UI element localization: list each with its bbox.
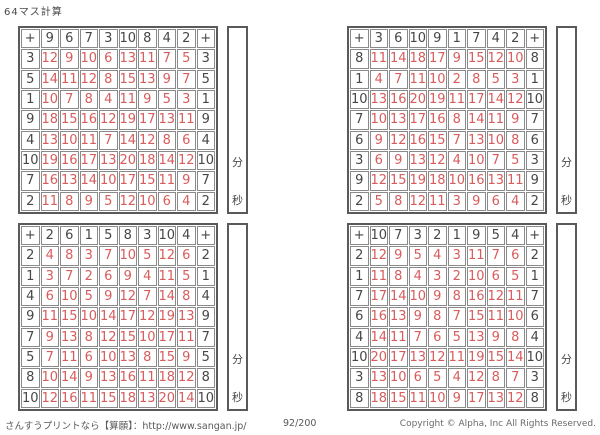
answer-cell: 13 [41, 131, 60, 150]
answer-cell: 10 [409, 287, 428, 306]
answer-cell: 4 [41, 246, 60, 265]
operator-cell: + [350, 226, 369, 245]
answer-cell: 14 [158, 287, 177, 306]
answer-cell: 6 [487, 267, 506, 286]
answer-cell: 9 [158, 70, 177, 89]
answer-cell: 6 [99, 267, 118, 286]
answer-cell: 9 [448, 49, 467, 68]
answer-cell: 3 [506, 70, 525, 89]
page-number: 92/200 [283, 418, 316, 429]
answer-cell: 12 [41, 49, 60, 68]
answer-cell: 8 [80, 90, 99, 109]
answer-cell: 12 [370, 246, 389, 265]
row-header-cell: 4 [350, 328, 369, 347]
row-header-cell: 4 [197, 131, 216, 150]
answer-cell: 11 [158, 171, 177, 190]
answer-cell: 13 [370, 90, 389, 109]
answer-cell: 11 [409, 70, 428, 89]
answer-cell: 11 [60, 70, 79, 89]
answer-cell: 9 [467, 192, 486, 211]
answer-cell: 10 [41, 90, 60, 109]
answer-cell: 17 [119, 171, 138, 190]
answer-cell: 15 [60, 110, 79, 129]
answer-cell: 17 [389, 348, 408, 367]
answer-cell: 13 [60, 171, 79, 190]
answer-cell: 15 [389, 389, 408, 408]
answer-cell: 12 [409, 192, 428, 211]
answer-cell: 6 [41, 287, 60, 306]
answer-cell: 13 [119, 348, 138, 367]
answer-cell: 20 [370, 348, 389, 367]
answer-cell: 9 [506, 110, 525, 129]
answer-cell: 7 [177, 70, 196, 89]
row-header-cell: 7 [526, 110, 545, 129]
answer-cell: 14 [389, 287, 408, 306]
answer-cell: 8 [448, 110, 467, 129]
col-header-cell: 4 [487, 29, 506, 48]
row-header-cell: 5 [197, 70, 216, 89]
answer-cell: 4 [177, 192, 196, 211]
answer-cell: 12 [41, 389, 60, 408]
row-header-cell: 2 [197, 192, 216, 211]
answer-cell: 10 [60, 131, 79, 150]
worksheet-block-top-left: +967310842+31291061311753514111281513975… [18, 26, 248, 214]
col-header-cell: 7 [389, 226, 408, 245]
answer-cell: 13 [177, 307, 196, 326]
answer-cell: 9 [138, 90, 157, 109]
answer-cell: 7 [41, 348, 60, 367]
col-header-cell: 9 [467, 226, 486, 245]
col-header-cell: 5 [99, 226, 118, 245]
answer-cell: 8 [448, 287, 467, 306]
answer-cell: 5 [138, 246, 157, 265]
row-header-cell: 3 [197, 49, 216, 68]
answer-cell: 16 [60, 151, 79, 170]
worksheet-block-bottom-left: +261583104+24837105126213726941151461059… [18, 223, 248, 411]
answer-cell: 9 [389, 246, 408, 265]
answer-cell: 6 [487, 192, 506, 211]
row-header-cell: 8 [21, 368, 40, 387]
row-header-cell: 7 [350, 110, 369, 129]
answer-cell: 11 [389, 328, 408, 347]
time-box-bottom-right: 分 秒 [556, 223, 577, 411]
answer-cell: 19 [119, 110, 138, 129]
row-header-cell: 1 [21, 267, 40, 286]
answer-cell: 6 [80, 348, 99, 367]
answer-cell: 7 [448, 131, 467, 150]
row-header-cell: 10 [350, 90, 369, 109]
answer-cell: 11 [41, 192, 60, 211]
row-header-cell: 10 [197, 151, 216, 170]
answer-cell: 13 [389, 307, 408, 326]
answer-cell: 11 [177, 110, 196, 129]
answer-cell: 11 [428, 192, 447, 211]
answer-cell: 19 [467, 348, 486, 367]
answer-cell: 8 [428, 307, 447, 326]
row-header-cell: 6 [350, 307, 369, 326]
answer-cell: 9 [80, 368, 99, 387]
row-header-cell: 7 [526, 287, 545, 306]
row-header-cell: 3 [526, 368, 545, 387]
answer-cell: 14 [158, 151, 177, 170]
answer-cell: 9 [177, 348, 196, 367]
row-header-cell: 8 [526, 49, 545, 68]
col-header-cell: 3 [138, 226, 157, 245]
answer-cell: 10 [448, 171, 467, 190]
answer-cell: 19 [41, 151, 60, 170]
row-header-cell: 1 [350, 70, 369, 89]
page-title: 64マス計算 [4, 3, 63, 18]
seconds-label: 秒 [558, 389, 575, 405]
answer-cell: 11 [467, 246, 486, 265]
row-header-cell: 8 [526, 389, 545, 408]
col-header-cell: 8 [138, 29, 157, 48]
answer-cell: 7 [60, 90, 79, 109]
answer-cell: 5 [448, 328, 467, 347]
col-header-cell: 3 [370, 29, 389, 48]
answer-cell: 12 [487, 287, 506, 306]
row-header-cell: 9 [197, 110, 216, 129]
answer-cell: 7 [99, 131, 118, 150]
row-header-cell: 2 [526, 192, 545, 211]
answer-cell: 5 [177, 267, 196, 286]
answer-cell: 15 [138, 171, 157, 190]
answer-cell: 3 [177, 90, 196, 109]
answer-cell: 11 [370, 49, 389, 68]
answer-cell: 4 [409, 267, 428, 286]
answer-cell: 16 [119, 368, 138, 387]
row-header-cell: 10 [526, 90, 545, 109]
time-box-top-left: 分 秒 [227, 26, 248, 214]
answer-cell: 14 [506, 348, 525, 367]
answer-cell: 4 [448, 368, 467, 387]
answer-cell: 17 [467, 90, 486, 109]
row-header-cell: 3 [350, 368, 369, 387]
row-header-cell: 6 [526, 131, 545, 150]
answer-cell: 12 [428, 151, 447, 170]
col-header-cell: 7 [467, 29, 486, 48]
answer-grid-top-right: +361091742+81114181791512108147111028531… [347, 26, 547, 214]
answer-cell: 13 [487, 389, 506, 408]
answer-cell: 6 [506, 246, 525, 265]
col-header-cell: 6 [60, 29, 79, 48]
answer-cell: 10 [119, 246, 138, 265]
answer-cell: 18 [428, 171, 447, 190]
col-header-cell: 1 [448, 226, 467, 245]
answer-cell: 18 [158, 368, 177, 387]
answer-cell: 9 [80, 192, 99, 211]
answer-cell: 12 [158, 246, 177, 265]
col-header-cell: 10 [370, 226, 389, 245]
answer-cell: 12 [428, 348, 447, 367]
answer-cell: 17 [467, 389, 486, 408]
answer-cell: 14 [80, 171, 99, 190]
answer-cell: 9 [428, 287, 447, 306]
answer-cell: 17 [138, 110, 157, 129]
col-header-cell: 3 [99, 29, 118, 48]
col-header-cell: 4 [506, 226, 525, 245]
answer-cell: 18 [119, 389, 138, 408]
row-header-cell: 1 [526, 267, 545, 286]
row-header-cell: 2 [350, 192, 369, 211]
answer-cell: 9 [448, 389, 467, 408]
answer-cell: 9 [119, 267, 138, 286]
row-header-cell: 7 [197, 328, 216, 347]
col-header-cell: 6 [389, 29, 408, 48]
answer-cell: 12 [119, 287, 138, 306]
row-header-cell: 1 [197, 90, 216, 109]
answer-cell: 10 [80, 49, 99, 68]
row-header-cell: 3 [21, 49, 40, 68]
answer-cell: 11 [506, 171, 525, 190]
answer-cell: 12 [370, 171, 389, 190]
answer-cell: 17 [409, 110, 428, 129]
answer-cell: 8 [99, 70, 118, 89]
answer-cell: 10 [389, 368, 408, 387]
answer-cell: 12 [119, 192, 138, 211]
seconds-label: 秒 [229, 192, 246, 208]
answer-cell: 15 [487, 348, 506, 367]
answer-cell: 9 [409, 307, 428, 326]
operator-cell: + [21, 226, 40, 245]
answer-cell: 12 [177, 151, 196, 170]
answer-cell: 8 [177, 287, 196, 306]
col-header-cell: 7 [80, 29, 99, 48]
answer-cell: 9 [389, 151, 408, 170]
row-header-cell: 7 [21, 171, 40, 190]
answer-cell: 7 [138, 287, 157, 306]
answer-cell: 7 [409, 328, 428, 347]
answer-cell: 17 [119, 307, 138, 326]
answer-cell: 4 [448, 151, 467, 170]
answer-cell: 7 [506, 368, 525, 387]
answer-cell: 10 [370, 110, 389, 129]
answer-cell: 8 [138, 348, 157, 367]
answer-cell: 12 [99, 328, 118, 347]
answer-cell: 14 [487, 90, 506, 109]
row-header-cell: 10 [350, 348, 369, 367]
answer-cell: 15 [99, 389, 118, 408]
answer-cell: 8 [389, 267, 408, 286]
answer-cell: 15 [60, 307, 79, 326]
answer-cell: 18 [41, 110, 60, 129]
row-header-cell: 2 [197, 246, 216, 265]
answer-cell: 13 [99, 368, 118, 387]
col-header-cell: 6 [60, 226, 79, 245]
answer-cell: 18 [409, 49, 428, 68]
seconds-label: 秒 [229, 389, 246, 405]
worksheet-block-bottom-right: +107321954+21295431176211184321065171714… [347, 223, 577, 411]
answer-cell: 6 [99, 49, 118, 68]
answer-cell: 17 [80, 151, 99, 170]
answer-cell: 10 [506, 49, 525, 68]
time-box-bottom-left: 分 秒 [227, 223, 248, 411]
row-header-cell: 1 [526, 70, 545, 89]
answer-cell: 8 [80, 328, 99, 347]
answer-cell: 12 [467, 368, 486, 387]
answer-cell: 4 [370, 70, 389, 89]
minutes-label: 分 [229, 351, 246, 367]
answer-cell: 11 [60, 348, 79, 367]
answer-cell: 10 [428, 389, 447, 408]
answer-cell: 3 [80, 246, 99, 265]
row-header-cell: 7 [21, 328, 40, 347]
answer-cell: 13 [99, 151, 118, 170]
answer-cell: 14 [389, 49, 408, 68]
copyright-text: Copyright © Alpha, Inc All Rights Reserv… [400, 419, 596, 429]
row-header-cell: 1 [350, 267, 369, 286]
operator-cell: + [526, 226, 545, 245]
answer-cell: 13 [138, 70, 157, 89]
answer-cell: 8 [506, 328, 525, 347]
row-header-cell: 4 [197, 287, 216, 306]
answer-cell: 7 [60, 267, 79, 286]
answer-cell: 11 [506, 287, 525, 306]
answer-cell: 8 [467, 70, 486, 89]
answer-cell: 7 [158, 49, 177, 68]
answer-cell: 5 [506, 151, 525, 170]
row-header-cell: 4 [526, 328, 545, 347]
row-header-cell: 2 [526, 246, 545, 265]
answer-cell: 15 [389, 171, 408, 190]
answer-cell: 9 [99, 287, 118, 306]
col-header-cell: 9 [428, 29, 447, 48]
answer-cell: 13 [389, 110, 408, 129]
col-header-cell: 3 [409, 226, 428, 245]
answer-cell: 15 [428, 131, 447, 150]
row-header-cell: 9 [197, 307, 216, 326]
answer-cell: 14 [99, 307, 118, 326]
answer-cell: 10 [138, 328, 157, 347]
answer-cell: 15 [119, 70, 138, 89]
answer-cell: 16 [80, 110, 99, 129]
answer-cell: 3 [448, 246, 467, 265]
row-header-cell: 6 [526, 307, 545, 326]
answer-cell: 13 [467, 131, 486, 150]
col-header-cell: 5 [487, 226, 506, 245]
answer-cell: 2 [448, 267, 467, 286]
answer-cell: 10 [487, 131, 506, 150]
answer-grid-bottom-right: +107321954+21295431176211184321065171714… [347, 223, 547, 411]
answer-cell: 6 [409, 368, 428, 387]
answer-cell: 8 [60, 246, 79, 265]
answer-cell: 5 [80, 287, 99, 306]
minutes-label: 分 [558, 351, 575, 367]
answer-cell: 10 [41, 368, 60, 387]
col-header-cell: 1 [448, 29, 467, 48]
answer-cell: 3 [41, 267, 60, 286]
col-header-cell: 4 [177, 226, 196, 245]
footer-source-text: さんすうプリントなら【算願】：http://www.sangan.jp/ [5, 418, 247, 432]
answer-cell: 12 [80, 70, 99, 89]
answer-cell: 13 [119, 49, 138, 68]
answer-cell: 17 [370, 287, 389, 306]
answer-cell: 10 [99, 171, 118, 190]
operator-cell: + [526, 29, 545, 48]
answer-cell: 9 [370, 131, 389, 150]
answer-cell: 4 [506, 192, 525, 211]
row-header-cell: 4 [21, 287, 40, 306]
answer-cell: 14 [467, 110, 486, 129]
operator-cell: + [21, 29, 40, 48]
row-header-cell: 9 [526, 171, 545, 190]
answer-cell: 4 [428, 246, 447, 265]
worksheet-block-top-right: +361091742+81114181791512108147111028531… [347, 26, 577, 214]
answer-cell: 9 [41, 328, 60, 347]
answer-cell: 13 [409, 348, 428, 367]
col-header-cell: 2 [41, 226, 60, 245]
row-header-cell: 5 [197, 348, 216, 367]
answer-cell: 12 [177, 368, 196, 387]
answer-cell: 10 [428, 70, 447, 89]
answer-cell: 20 [119, 151, 138, 170]
answer-cell: 11 [138, 49, 157, 68]
row-header-cell: 8 [350, 49, 369, 68]
col-header-cell: 10 [409, 29, 428, 48]
answer-cell: 16 [467, 171, 486, 190]
row-header-cell: 7 [350, 287, 369, 306]
answer-cell: 5 [99, 192, 118, 211]
col-header-cell: 2 [506, 29, 525, 48]
col-header-cell: 1 [80, 226, 99, 245]
answer-cell: 13 [60, 328, 79, 347]
col-header-cell: 2 [428, 226, 447, 245]
answer-grid-top-left: +967310842+31291061311753514111281513975… [18, 26, 218, 214]
answer-cell: 7 [487, 246, 506, 265]
answer-cell: 2 [80, 267, 99, 286]
minutes-label: 分 [229, 154, 246, 170]
col-header-cell: 2 [177, 29, 196, 48]
answer-cell: 11 [119, 90, 138, 109]
answer-cell: 6 [177, 246, 196, 265]
row-header-cell: 1 [197, 267, 216, 286]
answer-cell: 7 [99, 246, 118, 265]
row-header-cell: 10 [197, 389, 216, 408]
answer-cell: 16 [60, 389, 79, 408]
row-header-cell: 2 [350, 246, 369, 265]
col-header-cell: 8 [119, 226, 138, 245]
row-header-cell: 4 [21, 131, 40, 150]
row-header-cell: 10 [21, 151, 40, 170]
answer-cell: 12 [138, 131, 157, 150]
answer-cell: 11 [41, 307, 60, 326]
answer-cell: 9 [177, 171, 196, 190]
answer-cell: 11 [177, 328, 196, 347]
answer-cell: 11 [487, 110, 506, 129]
answer-cell: 13 [370, 368, 389, 387]
col-header-cell: 10 [158, 226, 177, 245]
answer-cell: 5 [177, 49, 196, 68]
answer-cell: 10 [99, 348, 118, 367]
answer-cell: 4 [99, 90, 118, 109]
answer-cell: 10 [467, 151, 486, 170]
row-header-cell: 6 [350, 131, 369, 150]
answer-cell: 12 [506, 90, 525, 109]
answer-cell: 14 [119, 131, 138, 150]
answer-cell: 3 [448, 192, 467, 211]
answer-cell: 13 [138, 389, 157, 408]
row-header-cell: 7 [197, 171, 216, 190]
answer-cell: 7 [389, 70, 408, 89]
answer-cell: 10 [80, 307, 99, 326]
answer-cell: 11 [138, 368, 157, 387]
answer-cell: 17 [428, 49, 447, 68]
answer-cell: 14 [177, 389, 196, 408]
answer-cell: 11 [80, 131, 99, 150]
answer-cell: 20 [409, 90, 428, 109]
answer-cell: 13 [467, 328, 486, 347]
row-header-cell: 2 [21, 192, 40, 211]
